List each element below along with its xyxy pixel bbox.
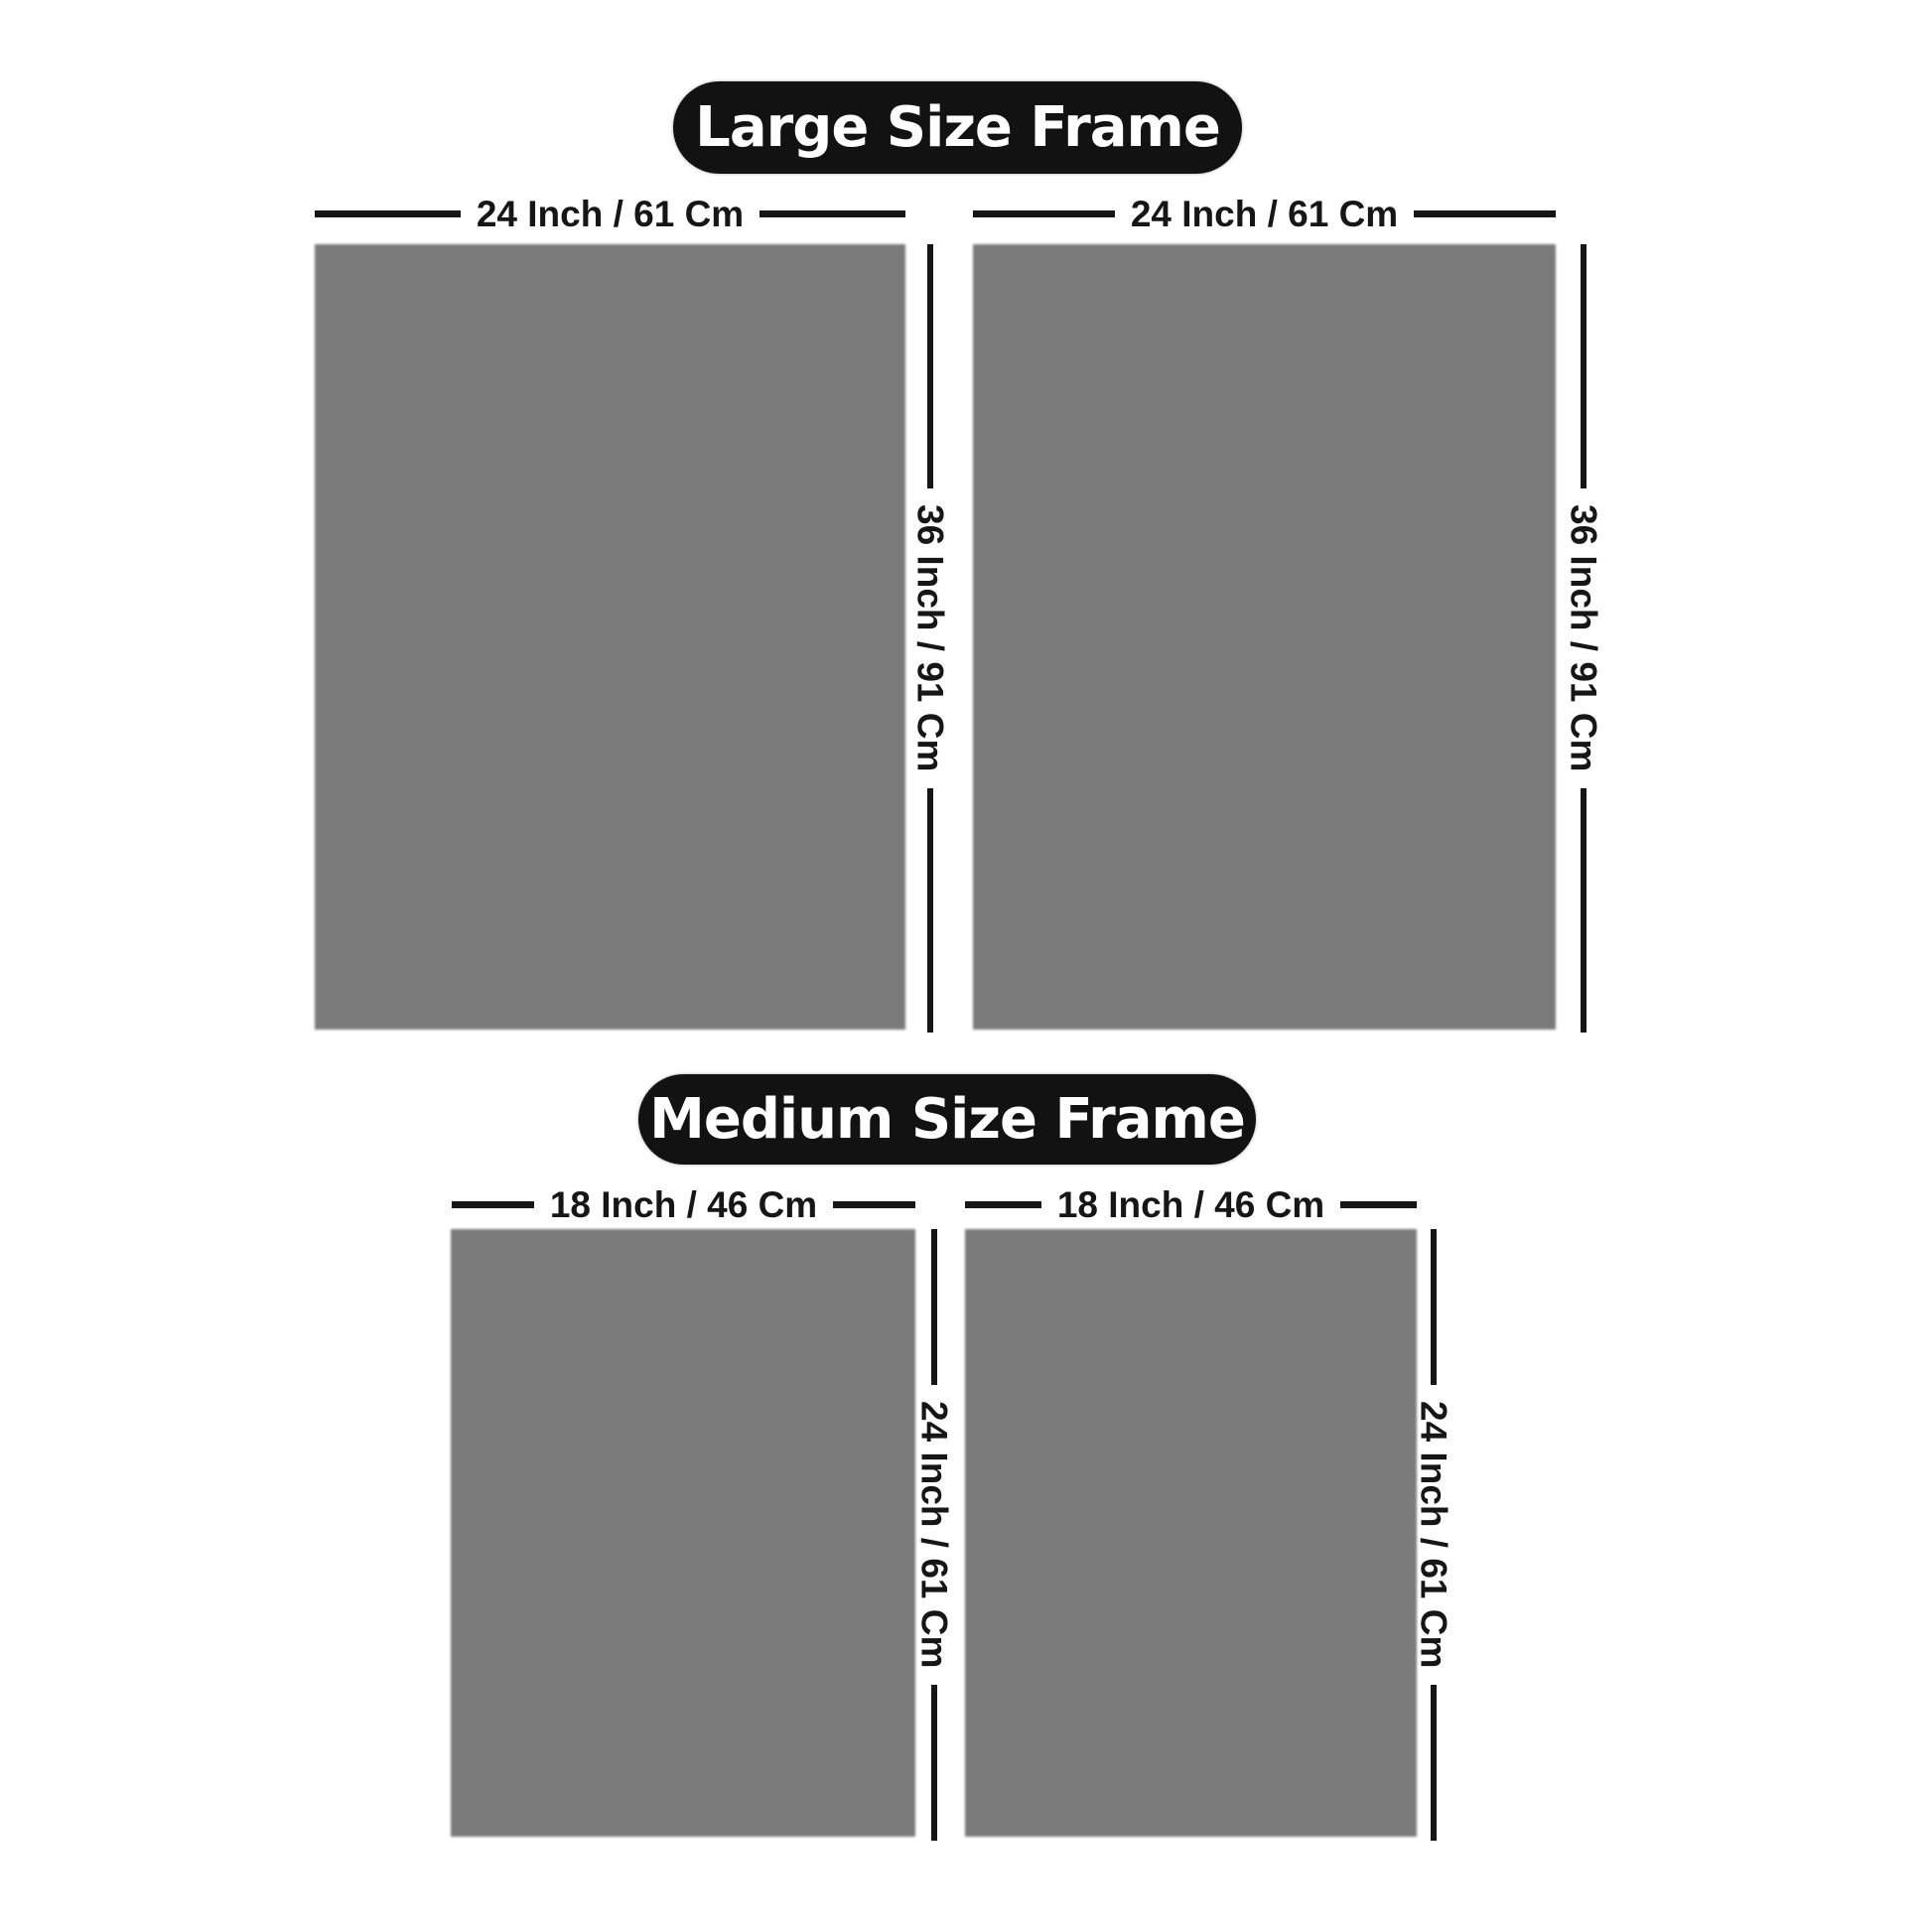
- size-guide-canvas: Large Size Frame 24 Inch / 61 Cm 24 Inch…: [0, 0, 1932, 1932]
- width-dimension-medium-left: 18 Inch / 46 Cm: [452, 1182, 915, 1226]
- dimension-line-segment: [759, 210, 905, 217]
- width-dimension-label: 24 Inch / 61 Cm: [1115, 196, 1414, 232]
- height-dimension-label: 24 Inch / 61 Cm: [1416, 1385, 1452, 1684]
- section-title-pill-medium: Medium Size Frame: [638, 1074, 1256, 1165]
- dimension-line-segment: [833, 1201, 915, 1208]
- dimension-line-segment: [452, 1201, 534, 1208]
- dimension-line-segment: [1431, 1229, 1437, 1385]
- dimension-line-segment: [1414, 210, 1556, 217]
- frame-panel-large-left: [315, 244, 905, 1030]
- dimension-line-segment: [927, 788, 933, 1033]
- width-dimension-label: 24 Inch / 61 Cm: [461, 196, 759, 232]
- height-dimension-large-left: 36 Inch / 91 Cm: [908, 244, 952, 1033]
- width-dimension-medium-right: 18 Inch / 46 Cm: [965, 1182, 1417, 1226]
- width-dimension-large-left: 24 Inch / 61 Cm: [315, 192, 905, 235]
- height-dimension-label: 36 Inch / 91 Cm: [912, 488, 949, 787]
- height-dimension-label: 24 Inch / 61 Cm: [916, 1385, 953, 1684]
- dimension-line-segment: [315, 210, 461, 217]
- frame-panel-medium-left: [451, 1229, 915, 1837]
- dimension-line-segment: [965, 1201, 1041, 1208]
- frame-panel-medium-right: [965, 1229, 1417, 1837]
- dimension-line-segment: [931, 1229, 937, 1385]
- dimension-line-segment: [973, 210, 1115, 217]
- frame-panel-large-right: [973, 244, 1556, 1030]
- height-dimension-medium-left: 24 Inch / 61 Cm: [912, 1229, 956, 1841]
- height-dimension-large-right: 36 Inch / 91 Cm: [1562, 244, 1605, 1033]
- section-title-pill-large: Large Size Frame: [673, 81, 1242, 174]
- section-title-medium: Medium Size Frame: [649, 1087, 1245, 1152]
- dimension-line-segment: [1581, 788, 1587, 1033]
- width-dimension-large-right: 24 Inch / 61 Cm: [973, 192, 1556, 235]
- width-dimension-label: 18 Inch / 46 Cm: [534, 1186, 833, 1223]
- dimension-line-segment: [927, 244, 933, 488]
- dimension-line-segment: [1431, 1685, 1437, 1841]
- width-dimension-label: 18 Inch / 46 Cm: [1041, 1186, 1340, 1223]
- dimension-line-segment: [931, 1685, 937, 1841]
- dimension-line-segment: [1581, 244, 1587, 488]
- section-title-large: Large Size Frame: [695, 95, 1220, 160]
- dimension-line-segment: [1340, 1201, 1417, 1208]
- height-dimension-medium-right: 24 Inch / 61 Cm: [1412, 1229, 1455, 1841]
- height-dimension-label: 36 Inch / 91 Cm: [1566, 488, 1602, 787]
